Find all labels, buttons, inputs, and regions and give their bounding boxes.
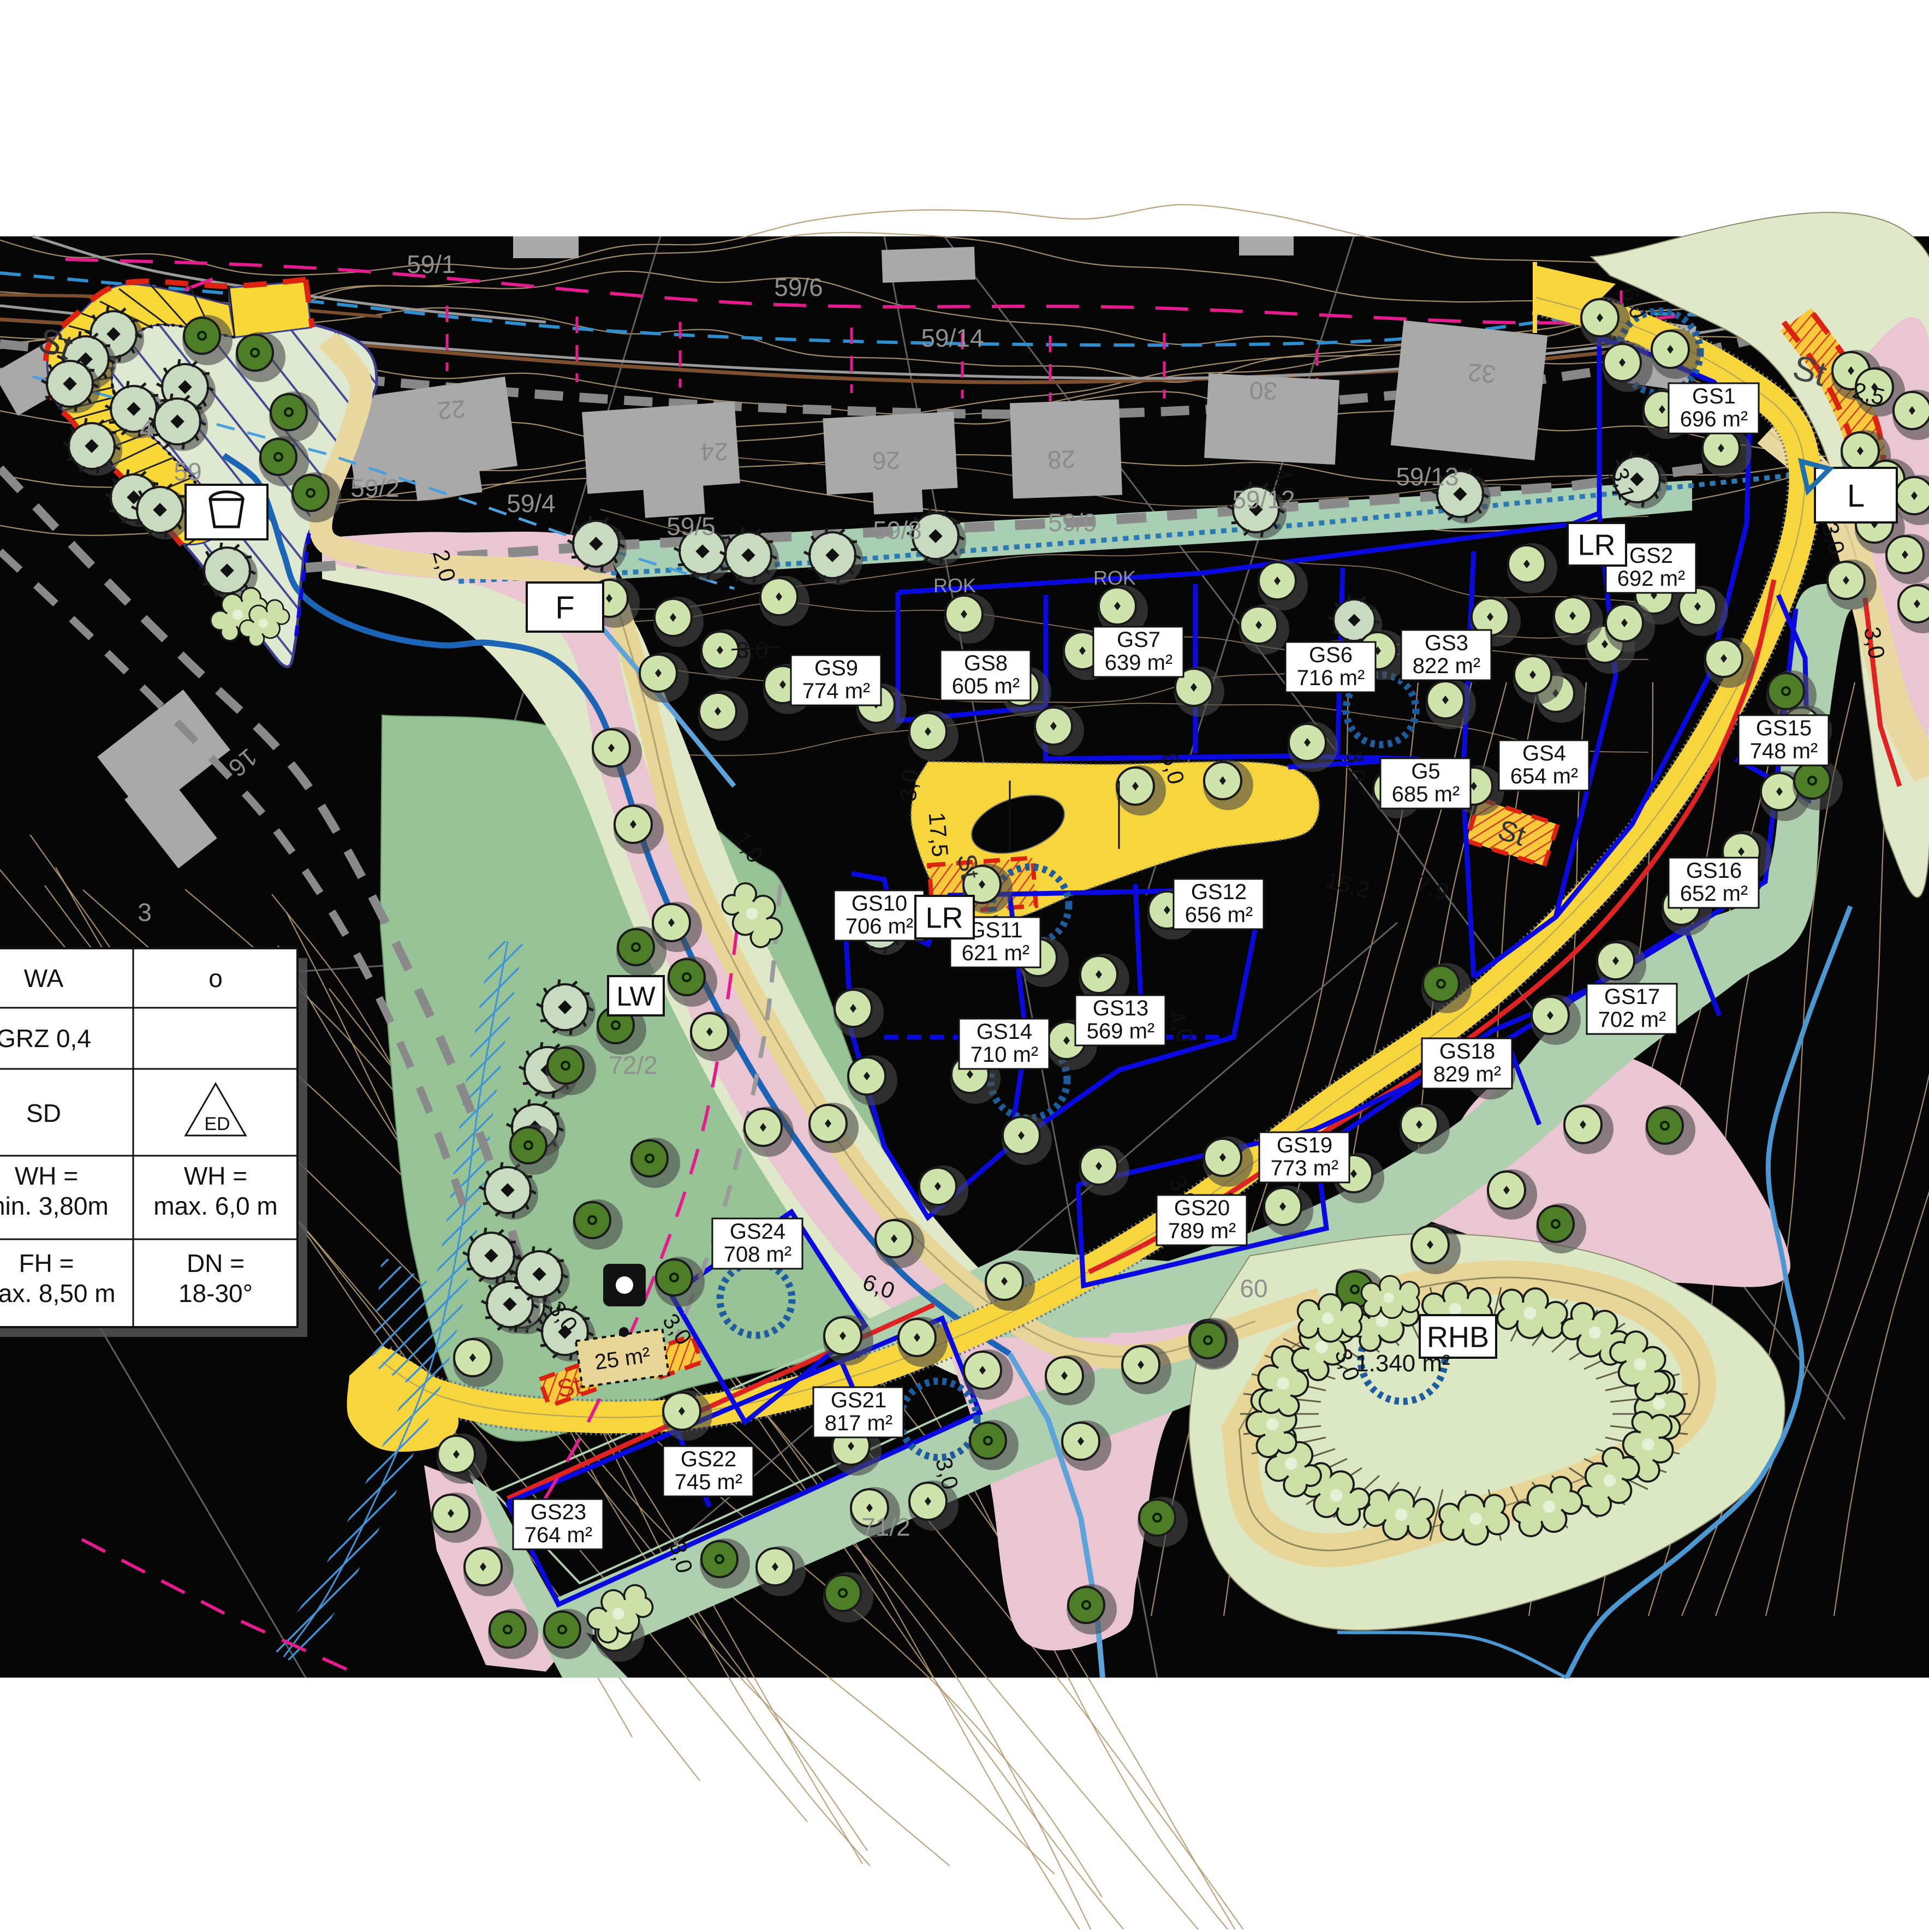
svg-text:St: St — [951, 852, 984, 881]
svg-text:59/2: 59/2 — [350, 474, 400, 502]
svg-text:716 m²: 716 m² — [1297, 666, 1365, 690]
svg-text:59: 59 — [174, 457, 201, 486]
svg-text:656 m²: 656 m² — [1185, 903, 1253, 927]
svg-text:569 m²: 569 m² — [1087, 1019, 1155, 1043]
svg-text:702 m²: 702 m² — [1598, 1008, 1666, 1032]
svg-text:WA: WA — [24, 964, 64, 992]
svg-text:4: 4 — [139, 415, 153, 443]
svg-text:G5: G5 — [1411, 759, 1440, 783]
svg-text:822 m²: 822 m² — [1413, 654, 1481, 678]
svg-text:22: 22 — [437, 395, 467, 425]
svg-text:748 m²: 748 m² — [1750, 739, 1818, 763]
svg-text:FH =: FH = — [19, 1249, 74, 1277]
svg-text:GS14: GS14 — [977, 1020, 1032, 1044]
svg-text:17,5: 17,5 — [924, 811, 953, 858]
svg-text:696 m²: 696 m² — [1680, 407, 1748, 431]
svg-text:59/1: 59/1 — [407, 250, 456, 278]
svg-text:F: F — [555, 590, 574, 626]
svg-text:GS9: GS9 — [814, 656, 858, 680]
svg-text:3,0: 3,0 — [895, 769, 924, 802]
svg-text:GS23: GS23 — [531, 1500, 586, 1524]
svg-text:WH =: WH = — [184, 1162, 247, 1190]
svg-text:32: 32 — [1467, 358, 1497, 389]
svg-text:DN =: DN = — [187, 1249, 245, 1277]
svg-text:GS18: GS18 — [1439, 1039, 1495, 1063]
svg-text:654 m²: 654 m² — [1510, 764, 1579, 788]
svg-text:WH =: WH = — [15, 1162, 78, 1190]
svg-text:59/4: 59/4 — [507, 489, 556, 518]
svg-text:639 m²: 639 m² — [1105, 651, 1173, 675]
svg-text:605 m²: 605 m² — [952, 674, 1020, 698]
svg-text:max. 6,0 m: max. 6,0 m — [153, 1192, 278, 1220]
svg-text:o: o — [209, 964, 223, 992]
svg-text:GS13: GS13 — [1093, 996, 1148, 1020]
svg-text:829 m²: 829 m² — [1433, 1062, 1502, 1086]
svg-text:GS10: GS10 — [852, 891, 907, 916]
svg-text:ROK: ROK — [1093, 567, 1136, 589]
svg-text:GS2: GS2 — [1629, 544, 1673, 568]
svg-text:71/2: 71/2 — [861, 1513, 910, 1541]
svg-text:L: L — [1847, 478, 1865, 514]
svg-text:SD: SD — [26, 1099, 61, 1127]
svg-text:GS19: GS19 — [1277, 1133, 1332, 1157]
svg-text:GS15: GS15 — [1756, 716, 1812, 740]
svg-text:LR: LR — [1577, 528, 1615, 561]
svg-text:GS12: GS12 — [1191, 880, 1247, 904]
svg-text:GS1: GS1 — [1692, 384, 1736, 408]
svg-text:774 m²: 774 m² — [802, 679, 871, 703]
svg-text:GS24: GS24 — [730, 1220, 785, 1244]
svg-text:LW: LW — [616, 981, 656, 1012]
svg-text:RHB: RHB — [1427, 1321, 1489, 1353]
svg-text:789 m²: 789 m² — [1168, 1219, 1236, 1243]
svg-text:GS22: GS22 — [681, 1447, 736, 1471]
svg-text:692 m²: 692 m² — [1617, 567, 1686, 591]
svg-text:GS7: GS7 — [1117, 628, 1160, 652]
svg-text:GS17: GS17 — [1604, 985, 1660, 1009]
svg-text:GS6: GS6 — [1309, 643, 1353, 667]
svg-text:708 m²: 708 m² — [724, 1243, 792, 1267]
svg-text:773 m²: 773 m² — [1271, 1156, 1339, 1180]
svg-text:59/9: 59/9 — [1048, 508, 1097, 537]
svg-text:ROK: ROK — [933, 574, 976, 597]
svg-text:652 m²: 652 m² — [1680, 882, 1748, 906]
svg-text:GS16: GS16 — [1686, 859, 1742, 883]
svg-text:3: 3 — [138, 898, 152, 926]
svg-text:621 m²: 621 m² — [962, 941, 1030, 965]
svg-text:GS11: GS11 — [968, 918, 1022, 942]
svg-text:745 m²: 745 m² — [675, 1470, 743, 1494]
svg-text:ED: ED — [204, 1114, 230, 1134]
svg-text:710 m²: 710 m² — [971, 1043, 1039, 1067]
svg-text:764 m²: 764 m² — [525, 1523, 593, 1547]
svg-text:18-30°: 18-30° — [178, 1279, 253, 1307]
svg-text:30: 30 — [1249, 376, 1278, 406]
svg-text:3,0: 3,0 — [1859, 625, 1890, 661]
svg-text:GS21: GS21 — [831, 1388, 886, 1412]
svg-text:60: 60 — [1240, 1274, 1267, 1303]
svg-text:26: 26 — [872, 446, 901, 475]
svg-text:1.340 m²: 1.340 m² — [1355, 1350, 1450, 1377]
svg-text:24: 24 — [700, 437, 729, 467]
svg-text:72/2: 72/2 — [609, 1051, 658, 1079]
svg-text:GS4: GS4 — [1522, 741, 1566, 765]
svg-text:59/6: 59/6 — [774, 273, 823, 301]
svg-text:min. 3,80m: min. 3,80m — [0, 1192, 109, 1220]
svg-text:28: 28 — [1047, 445, 1076, 474]
svg-text:LR: LR — [925, 901, 963, 934]
svg-text:817 m²: 817 m² — [825, 1411, 893, 1435]
svg-text:59/13: 59/13 — [1396, 462, 1458, 491]
svg-text:685 m²: 685 m² — [1392, 782, 1460, 806]
svg-text:59/5: 59/5 — [666, 512, 716, 540]
svg-text:GS20: GS20 — [1174, 1196, 1230, 1220]
svg-text:GRZ 0,4: GRZ 0,4 — [0, 1024, 91, 1053]
svg-text:GS8: GS8 — [964, 651, 1008, 675]
svg-text:59/8: 59/8 — [873, 516, 922, 544]
svg-text:706 m²: 706 m² — [846, 914, 914, 938]
svg-text:3,0: 3,0 — [1342, 750, 1370, 783]
svg-text:GS3: GS3 — [1425, 631, 1468, 655]
svg-text:max. 8,50 m: max. 8,50 m — [0, 1279, 116, 1307]
svg-text:59/12: 59/12 — [1232, 485, 1295, 514]
svg-text:59/14: 59/14 — [921, 324, 984, 352]
